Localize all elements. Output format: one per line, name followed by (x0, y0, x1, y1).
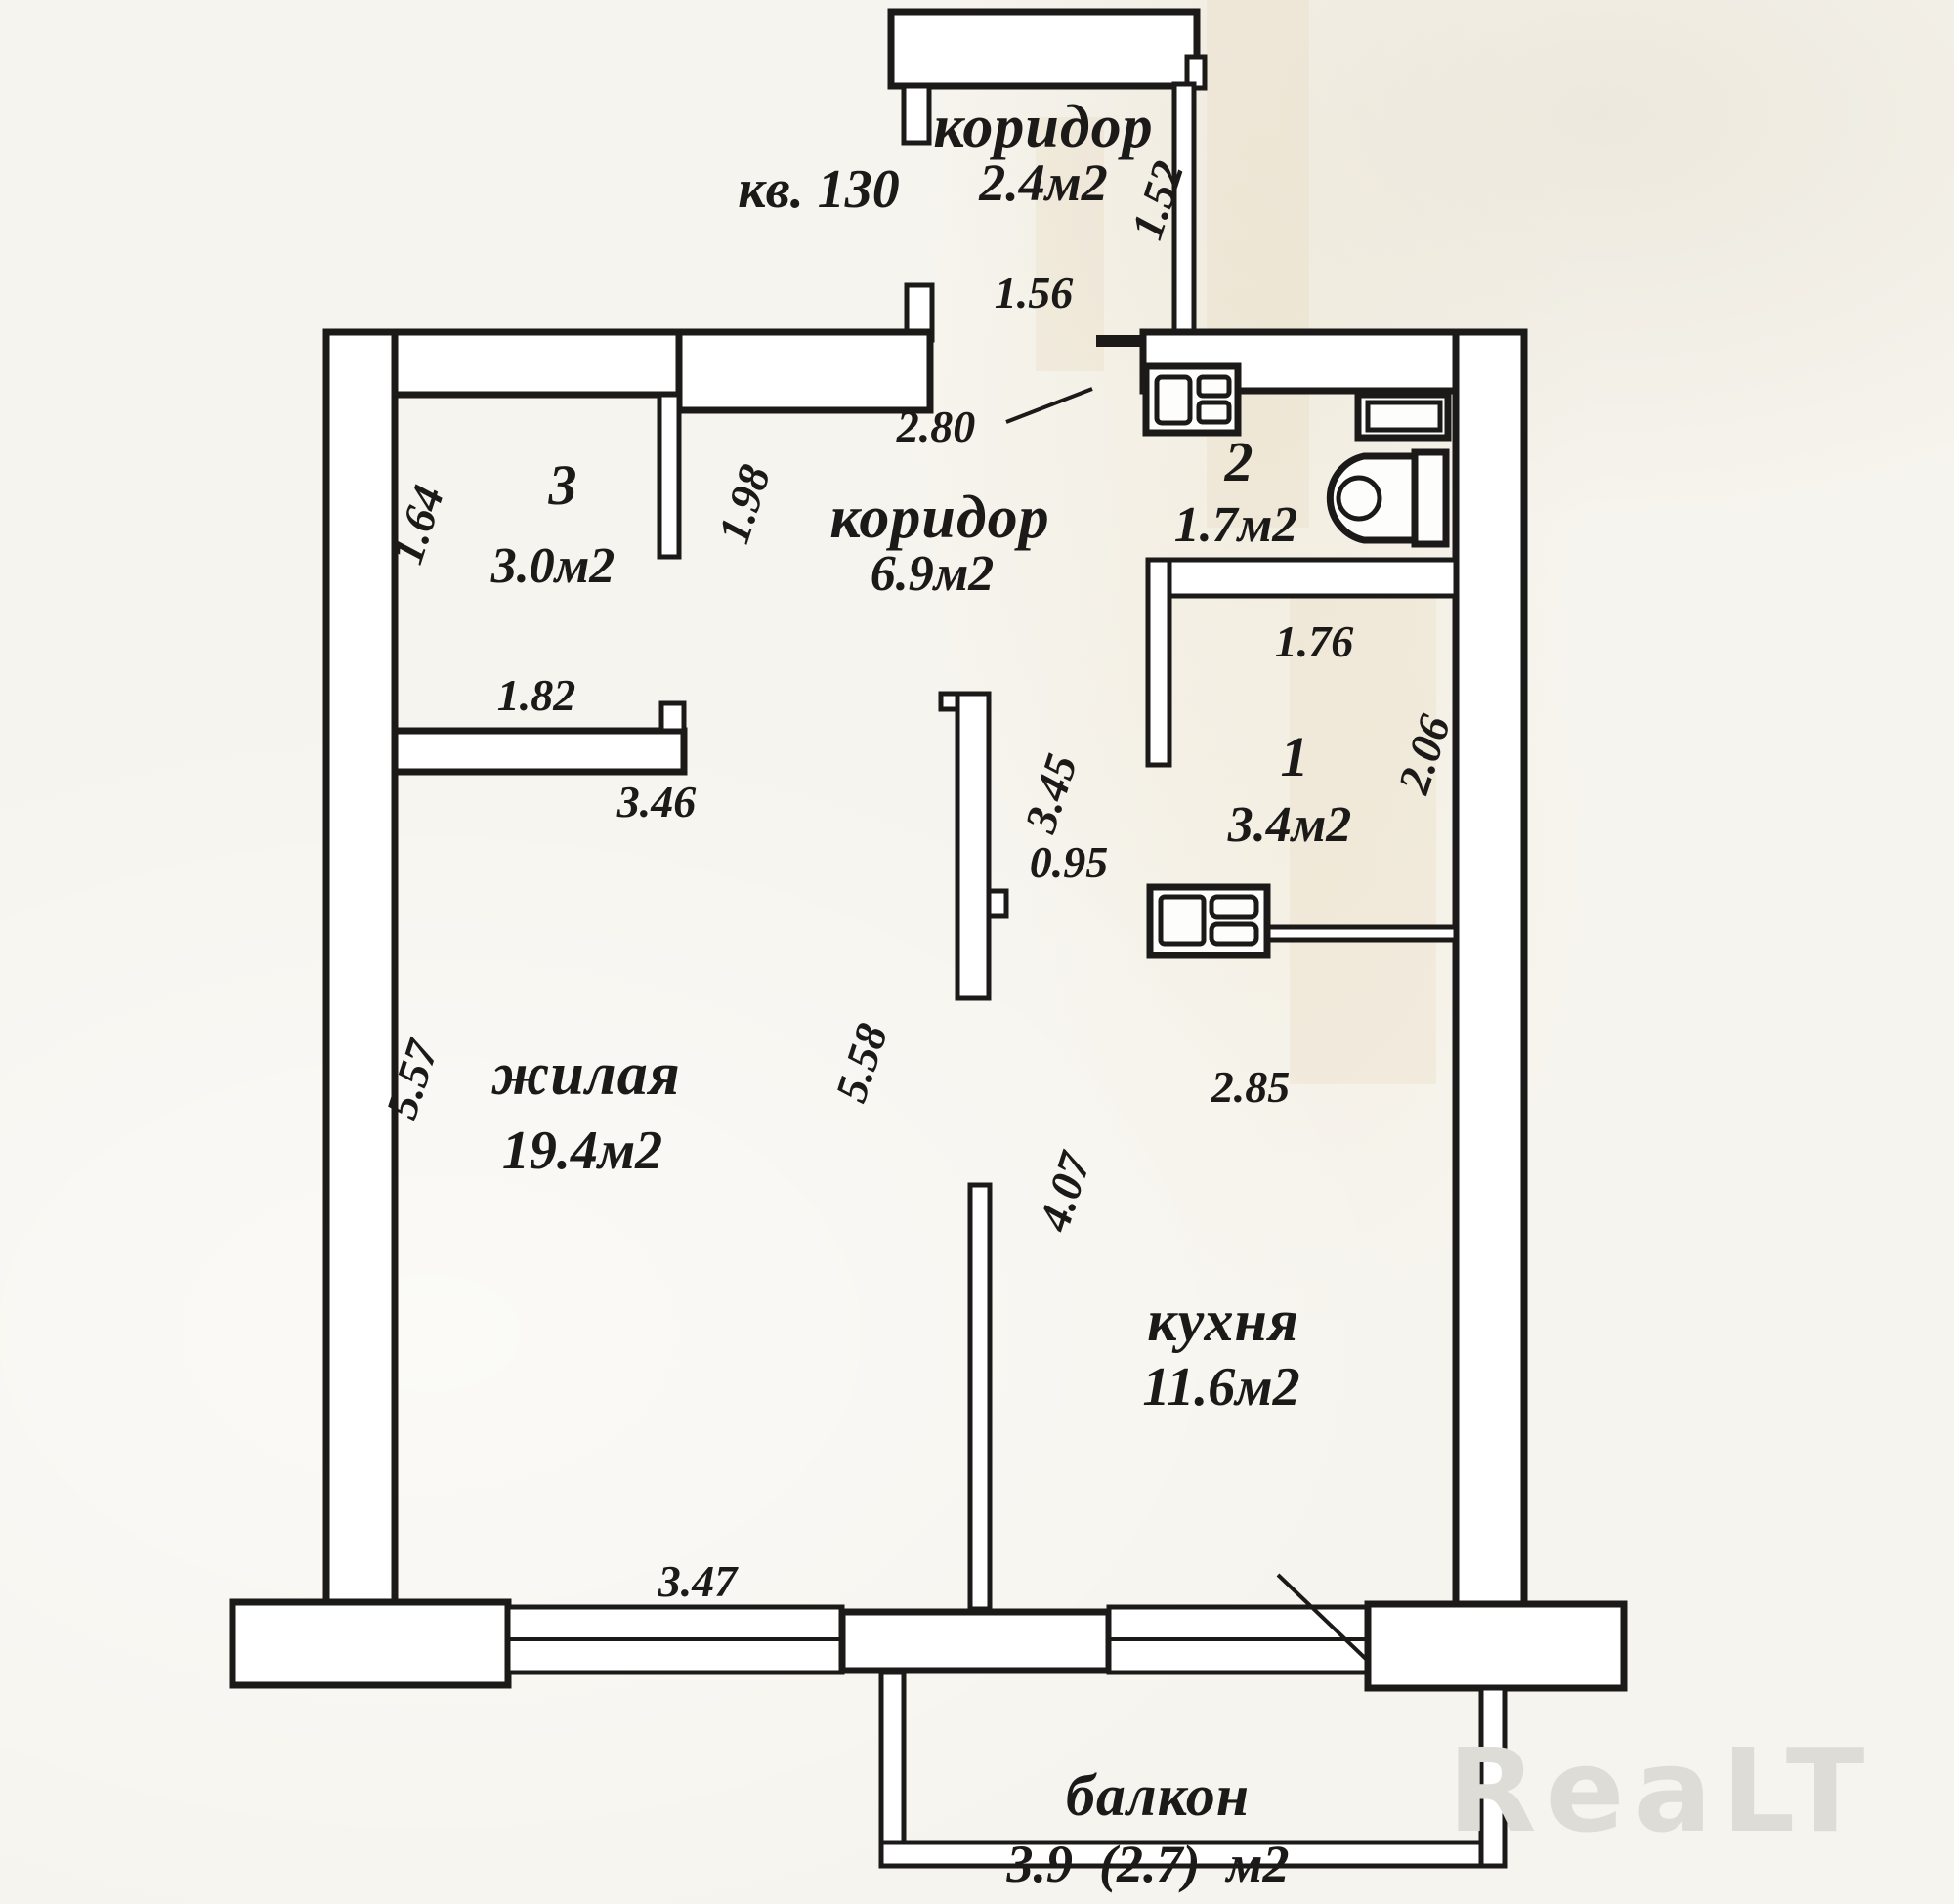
corridor-name: коридор (829, 485, 1049, 551)
wall-room3-bottom (395, 731, 684, 772)
wall-partition-upper (957, 694, 989, 998)
dim-opening-width: 0.95 (1030, 837, 1109, 887)
living-area: 19.4м2 (502, 1121, 662, 1181)
entry-corridor-area: 2.4м2 (978, 153, 1108, 212)
wall-room3-door-notch (661, 703, 684, 731)
dim-corridor-length: 3.46 (616, 777, 697, 826)
entry-corridor-name: коридор (933, 94, 1153, 160)
corridor-area: 6.9м2 (871, 546, 995, 602)
dim-living-right: 5.58 (826, 1018, 897, 1108)
leader-sink-unit (1006, 389, 1092, 422)
room1-area: 3.4м2 (1227, 797, 1352, 853)
kitchen-name: кухня (1147, 1289, 1298, 1353)
dim-entry-width: 1.56 (995, 268, 1074, 317)
paper-stain (1207, 0, 1309, 528)
wall-top-mid-segment (679, 332, 930, 410)
wall-partition-lower (970, 1185, 990, 1609)
wall-pier-bottom-right (1368, 1604, 1624, 1688)
living-name: жилая (490, 1041, 680, 1108)
wall-right-outer (1456, 332, 1524, 1612)
balcony-door-block (842, 1612, 1109, 1671)
apartment-number-label: кв. 130 (738, 159, 899, 220)
room3-number: 3 (548, 453, 577, 517)
room3-area: 3.0м2 (490, 538, 616, 594)
wall-room1-kitchen-divider (1267, 927, 1456, 940)
dim-living-bottom: 3.47 (658, 1556, 740, 1606)
stove-unit-icon (1150, 887, 1267, 955)
floor-plan-svg: кв. 130 коридор 2.4м2 1.52 1.56 2.80 3 3… (0, 0, 1954, 1904)
dim-partition-length: 3.45 (1015, 748, 1087, 839)
wall-pier-bottom-left (233, 1602, 508, 1685)
wall-room1-left (1148, 560, 1169, 765)
room1-number: 1 (1281, 725, 1309, 788)
kitchen-area: 11.6м2 (1142, 1357, 1299, 1417)
dim-kitchen-top: 2.85 (1211, 1062, 1291, 1112)
dim-kitchen-left: 4.07 (1029, 1145, 1101, 1238)
dim-room3-partition: 1.98 (708, 459, 780, 549)
washbasin-icon (1358, 395, 1448, 438)
scanned-floor-plan-page: кв. 130 коридор 2.4м2 1.52 1.56 2.80 3 3… (0, 0, 1954, 1904)
wall-partition-notch (989, 891, 1006, 916)
sink-unit-icon (1146, 366, 1238, 433)
wall-room3-right-partition (659, 395, 679, 557)
balcony-rail-left (881, 1672, 904, 1848)
balcony-name: балкон (1066, 1763, 1250, 1828)
room2-number: 2 (1224, 430, 1253, 493)
wall-left-outer (326, 332, 395, 1617)
realt-watermark: ReaLT (1448, 1723, 1875, 1858)
wall-entry-top-block (891, 12, 1197, 86)
dim-room1-top: 1.76 (1275, 616, 1354, 666)
wall-bathroom-bottom (1148, 560, 1456, 596)
balcony-area: 3.9 (2.7) м2 (1006, 1835, 1290, 1893)
wall-entry-jamb-upper (904, 86, 929, 143)
dim-corridor-top-width: 2.80 (896, 402, 976, 451)
dim-room3-bottom: 1.82 (497, 670, 576, 720)
toilet-icon (1330, 452, 1446, 544)
room2-area: 1.7м2 (1174, 497, 1298, 553)
walls (233, 12, 1624, 1866)
